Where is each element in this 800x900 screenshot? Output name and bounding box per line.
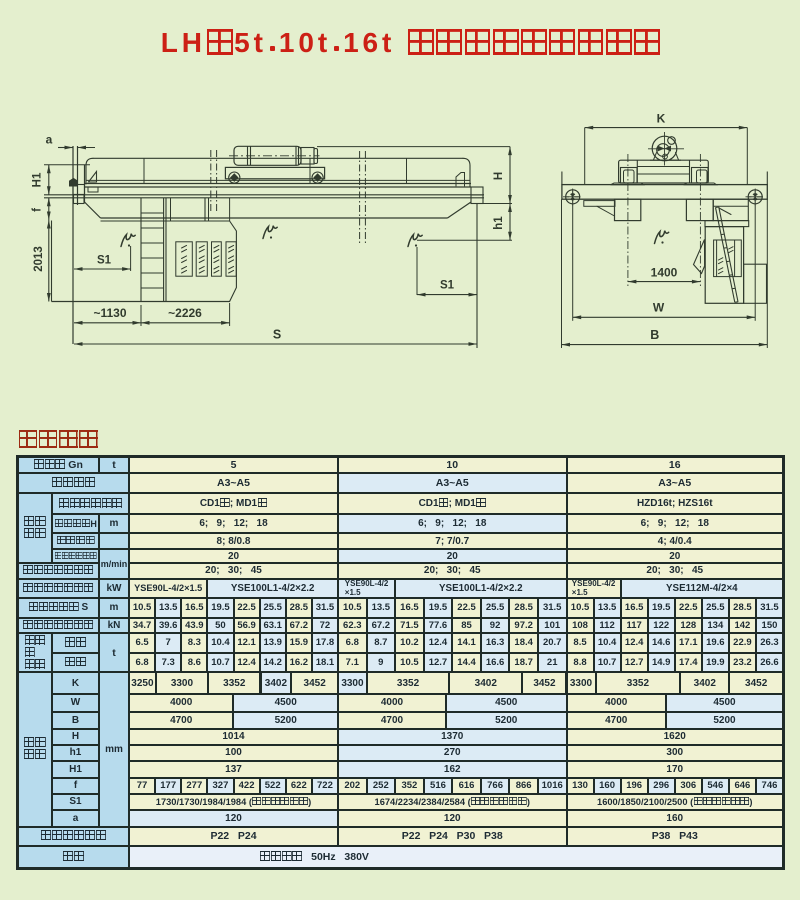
svg-text:B: B (650, 328, 659, 342)
svg-text:1400: 1400 (651, 265, 678, 279)
svg-text:H1: H1 (32, 172, 44, 187)
svg-text:S1: S1 (97, 255, 112, 267)
svg-text:h1: h1 (493, 216, 505, 230)
svg-text:f: f (32, 208, 44, 212)
svg-text:~1130: ~1130 (93, 306, 126, 320)
svg-text:2013: 2013 (33, 246, 45, 272)
svg-text:W: W (653, 301, 665, 315)
svg-text:H: H (493, 172, 505, 180)
svg-text:S: S (273, 328, 281, 342)
svg-text:K: K (657, 112, 666, 126)
svg-text:a: a (46, 133, 53, 147)
svg-text:~2226: ~2226 (168, 306, 202, 320)
svg-text:S1: S1 (440, 280, 455, 292)
